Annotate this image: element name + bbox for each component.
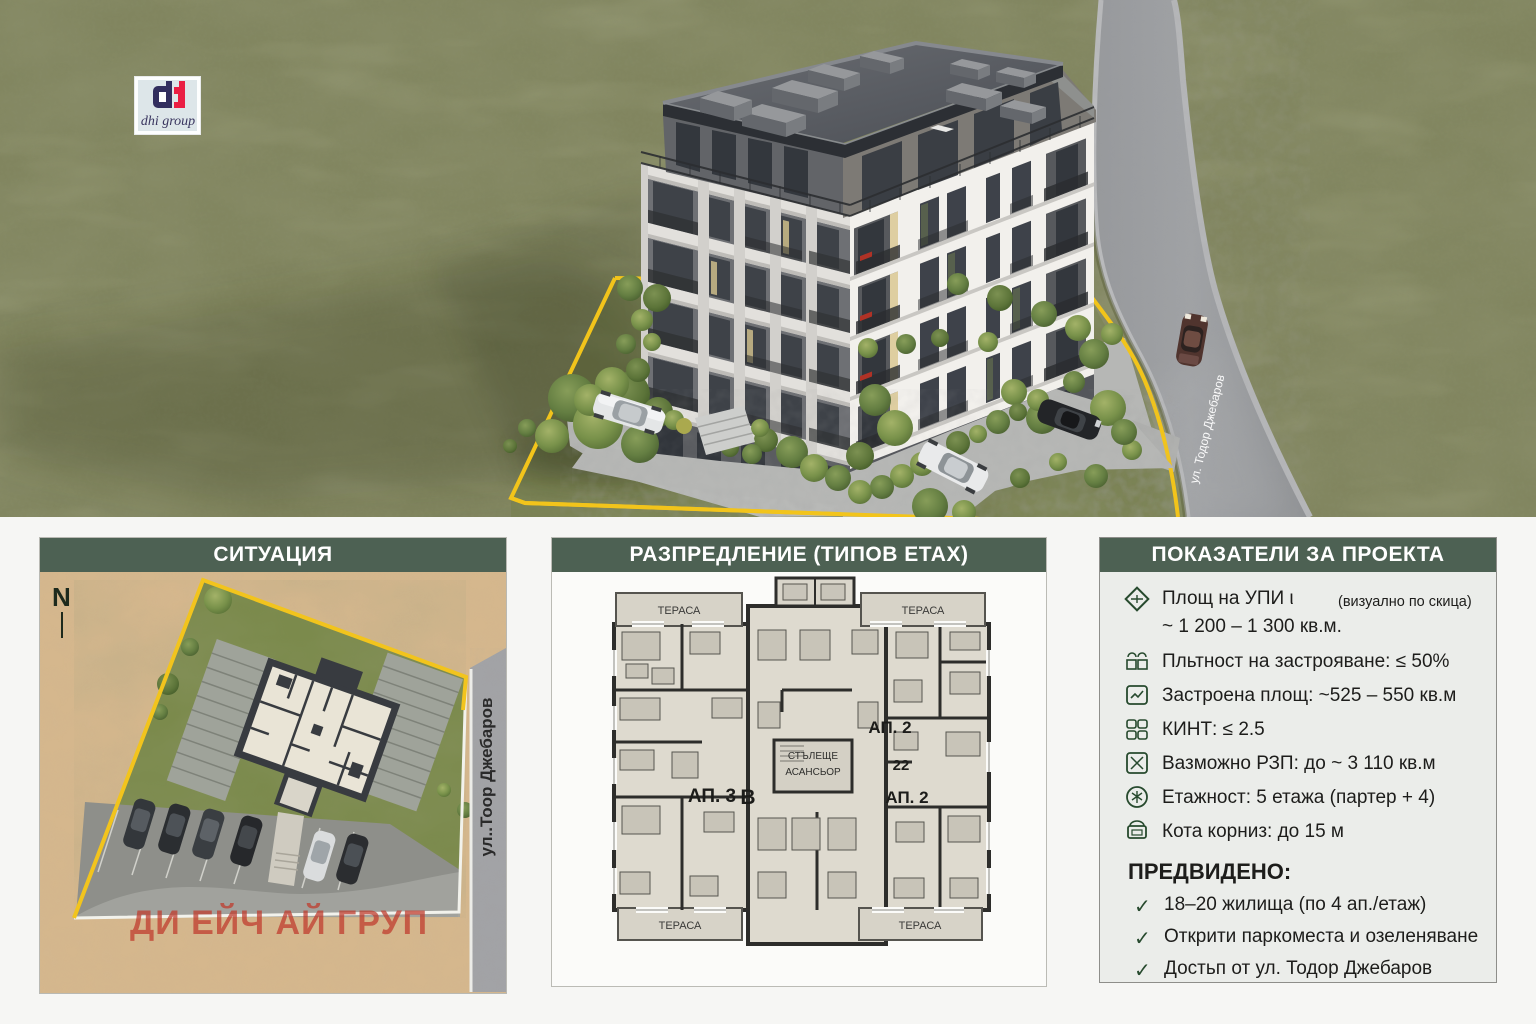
svg-text:АП. 2: АП. 2 [868,718,911,737]
svg-text:ТЕРАСА: ТЕРАСА [902,605,945,617]
svg-text:ДИ ЕЙЧ АЙ ГРУП: ДИ ЕЙЧ АЙ ГРУП [130,903,428,942]
svg-text:ТЕРАСА: ТЕРАСА [658,605,701,617]
svg-text:В: В [740,786,755,809]
svg-text:dhi group: dhi group [141,114,195,129]
svg-text:АП. 3: АП. 3 [688,786,736,807]
svg-text:N: N [52,582,71,612]
svg-text:ТЕРАСА: ТЕРАСА [659,920,702,932]
svg-text:АП. 2: АП. 2 [885,788,928,807]
svg-text:СТЪЛЕЩЕ: СТЪЛЕЩЕ [788,751,839,762]
svg-text:АСАНСЬОР: АСАНСЬОР [785,767,841,778]
svg-text:ТЕРАСА: ТЕРАСА [899,920,942,932]
svg-text:22: 22 [893,757,910,774]
svg-text:ул..Тоор Джебаров: ул..Тоор Джебаров [477,697,496,856]
